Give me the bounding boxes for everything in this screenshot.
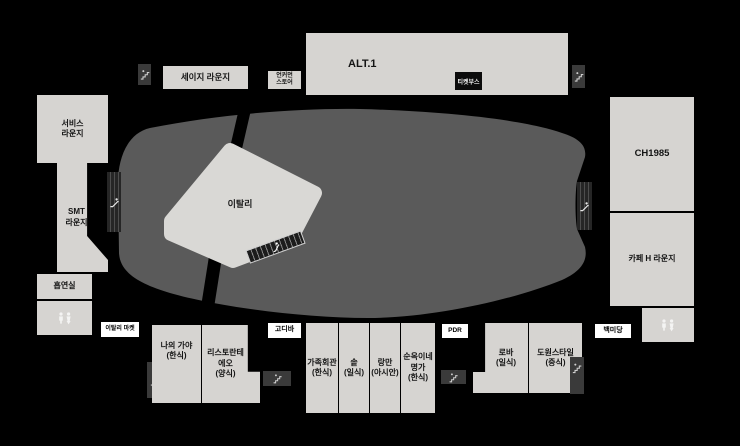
room-eataly-label: 이탈리 [212, 197, 268, 210]
stairs-box-dowon [570, 357, 584, 394]
room-sot: 솥 (일식) [339, 323, 369, 413]
room-rangman: 랑만 (아시안) [370, 323, 400, 413]
stairs-icon [272, 373, 283, 384]
label-baekmidang: 백미당 [595, 324, 631, 338]
room-alt1-label: ALT.1 [348, 57, 377, 71]
stairs-icon [140, 68, 150, 81]
restroom-icon [659, 319, 677, 332]
stairs-box-pdr [441, 370, 466, 384]
escalator-icon [579, 201, 590, 212]
stairs-box-top-right [572, 65, 585, 88]
label-godiva: 고디바 [268, 323, 301, 338]
room-smt-lounge: SMT 라운지 [57, 163, 108, 272]
room-smoking: 흡연실 [37, 274, 92, 299]
stairs-icon [572, 362, 582, 374]
room-sage-lounge: 세이지 라운지 [163, 66, 248, 89]
floor-plan: 이탈리 세이지 라운지 언커먼 스토어 ALT.1 티켓부스 [0, 0, 740, 446]
escalator-strip-right [577, 182, 592, 230]
stairs-icon [574, 70, 584, 83]
room-ch1985: CH1985 [610, 97, 694, 211]
ticket-booth: 티켓부스 [455, 72, 482, 90]
restroom-icon [56, 312, 74, 325]
room-cafe-h-lounge: 카페 H 라운지 [610, 213, 694, 306]
label-eataly-market: 이탈리 마켓 [101, 322, 139, 337]
escalator-icon [269, 241, 282, 254]
stairs-box-godiva [263, 371, 291, 386]
escalator-strip-left [107, 172, 121, 232]
room-uncommon-store: 언커먼 스토어 [268, 71, 301, 89]
room-ristorante-eo: 리스토란테 에오 (양식) [202, 325, 260, 403]
room-sunokine-myeongga: 순옥이네 명가 (한식) [401, 323, 435, 413]
escalator-icon [109, 197, 120, 208]
room-service-lounge: 서비스 라운지 [37, 95, 108, 163]
room-gajokhoegwan: 가족회관 (한식) [306, 323, 338, 413]
label-pdr: PDR [442, 324, 468, 338]
restroom-right [642, 308, 694, 342]
stairs-icon [448, 372, 459, 383]
room-roba: 로바 (일식) [473, 323, 528, 393]
room-alt1: ALT.1 [306, 33, 568, 95]
restroom-left [37, 301, 92, 335]
room-naui-gaya: 나의 가야 (한식) [152, 325, 201, 403]
stairs-box-top-left [138, 64, 151, 85]
